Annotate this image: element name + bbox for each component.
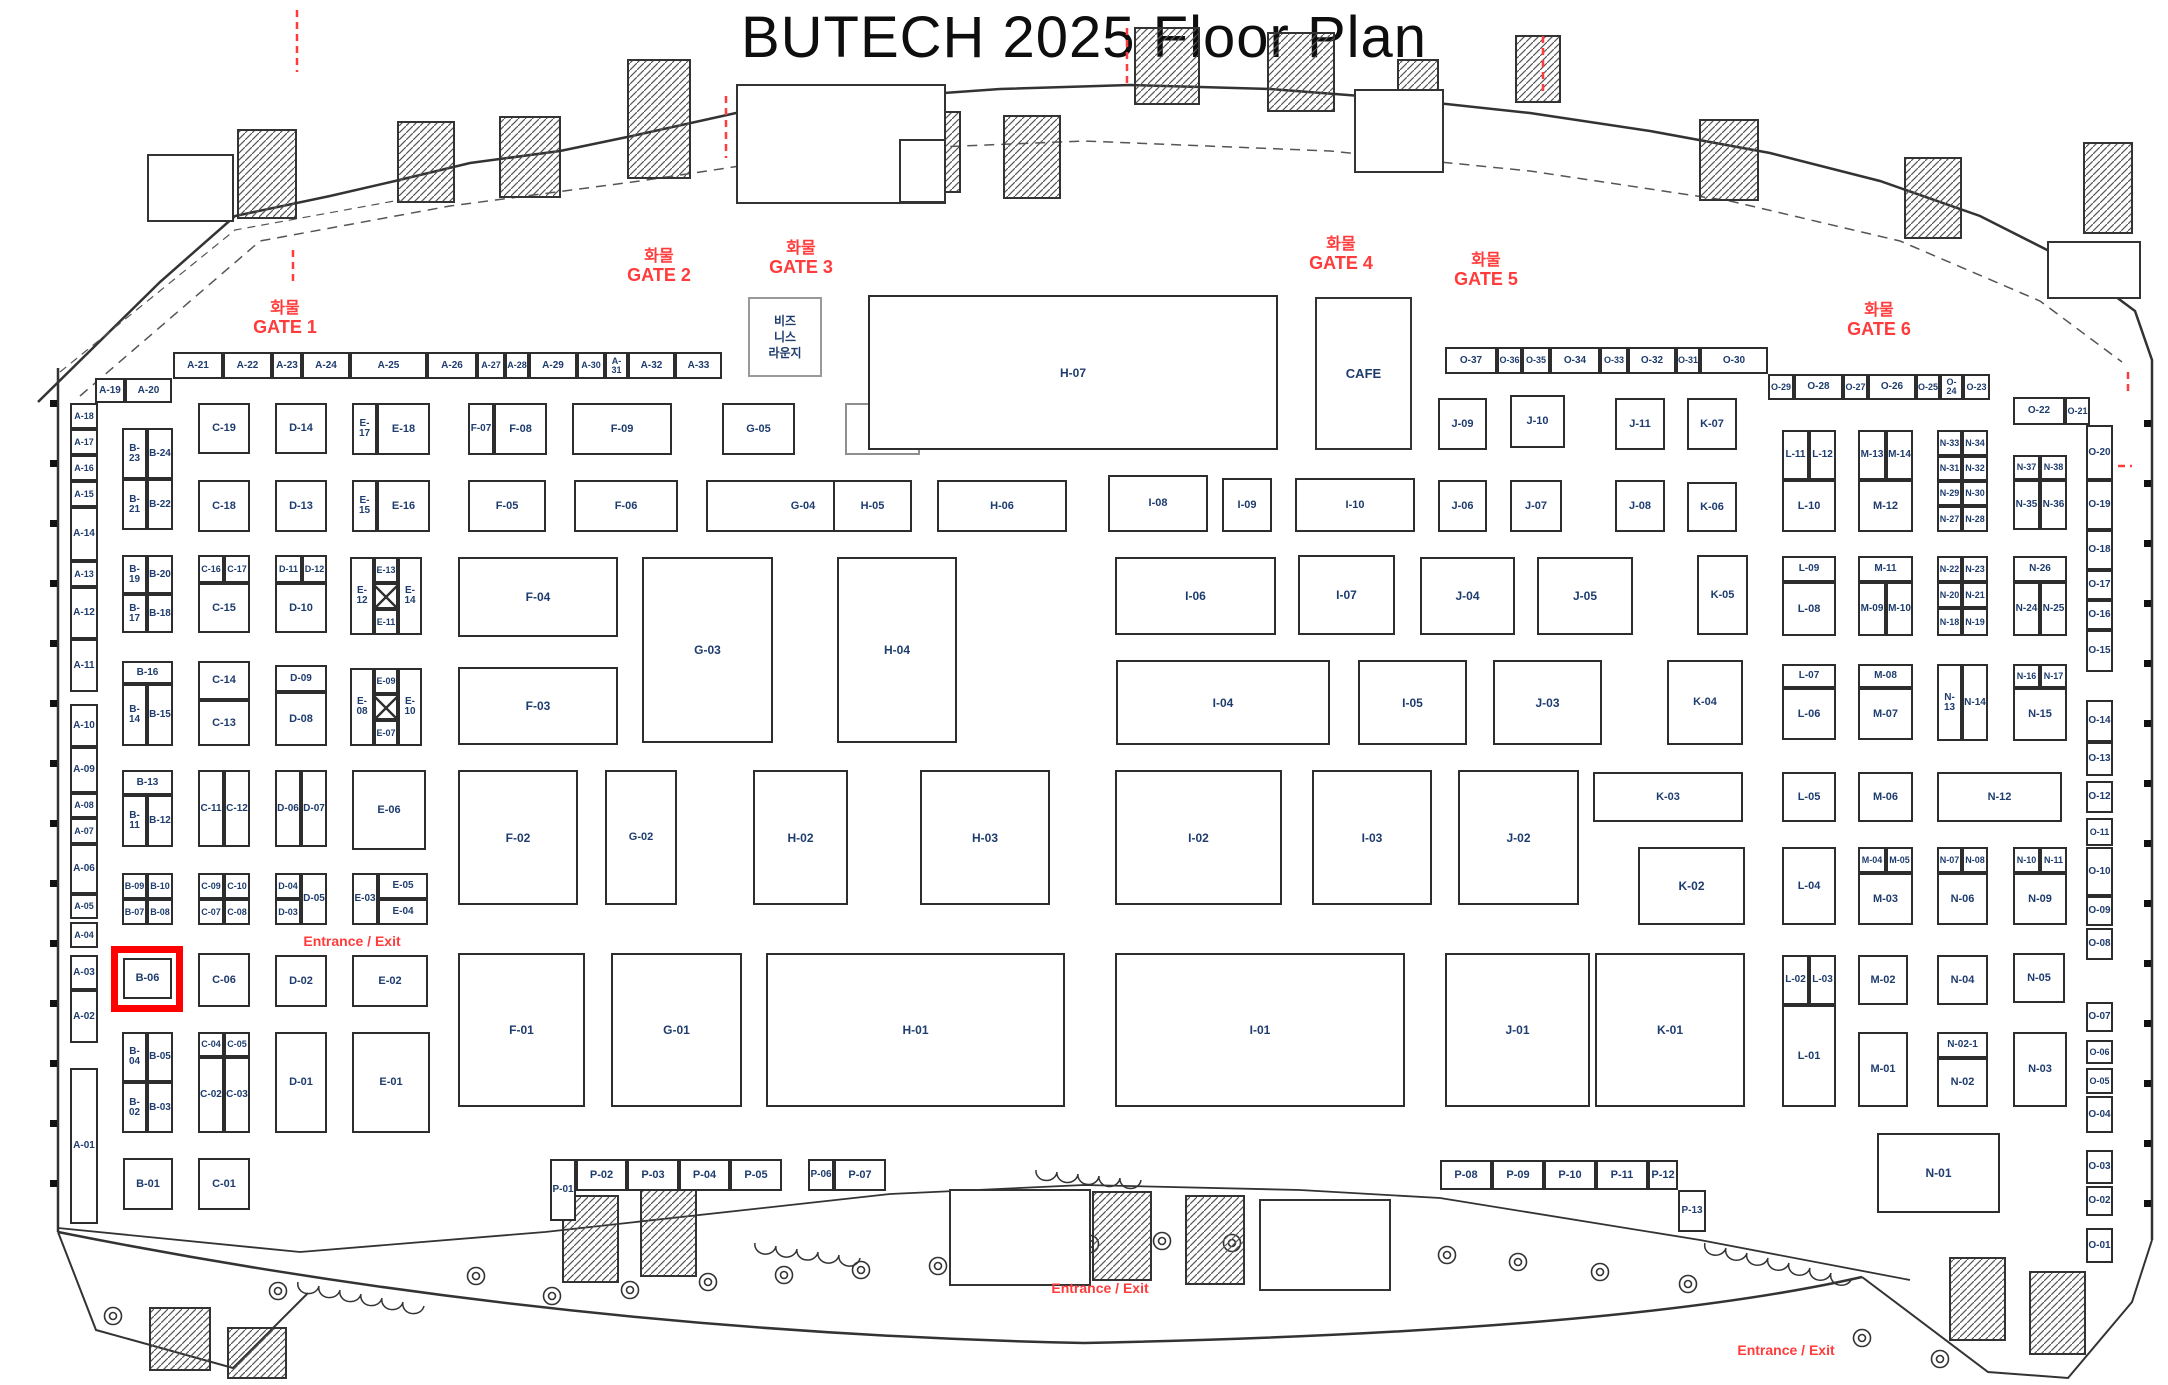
booth-H-03: H-03 [920, 770, 1050, 905]
booth-A-09: A-09 [70, 747, 98, 793]
booth-P-02: P-02 [576, 1159, 627, 1191]
booth-C-01: C-01 [198, 1158, 250, 1210]
booth-A-33: A-33 [675, 352, 722, 379]
cargo-gate-label-1: 화물GATE 1 [215, 300, 355, 337]
booth-B-14: B-14 [122, 684, 147, 746]
booth-E-18: E-18 [377, 403, 430, 455]
blocked-cell-icon [374, 583, 398, 609]
booth-A-03: A-03 [70, 955, 98, 990]
booth-O-10: O-10 [2086, 847, 2113, 896]
booth-D-11: D-11 [275, 555, 302, 583]
booth-N-18: N-18 [1937, 608, 1962, 636]
booth-L-01: L-01 [1782, 1005, 1836, 1107]
booth-A-08: A-08 [70, 793, 98, 818]
booth-B-22: B-22 [147, 479, 173, 530]
booth-I-08: I-08 [1108, 475, 1208, 532]
entrance-exit-label-1: Entrance / Exit [272, 933, 432, 949]
booth-A-13: A-13 [70, 561, 98, 587]
booth-H-01: H-01 [766, 953, 1065, 1107]
booth-O-33: O-33 [1600, 347, 1628, 374]
booth-J-05: J-05 [1537, 557, 1633, 635]
booth-B-11: B-11 [122, 795, 147, 847]
booth-B-07: B-07 [122, 899, 147, 925]
booth-O-04: O-04 [2086, 1096, 2113, 1133]
booth-I-04: I-04 [1116, 660, 1330, 745]
booth-N-35: N-35 [2013, 480, 2040, 530]
booth-M-08: M-08 [1858, 664, 1913, 688]
booth-K-02: K-02 [1638, 847, 1745, 925]
booth-M-09: M-09 [1858, 582, 1886, 636]
booth-P-12: P-12 [1648, 1160, 1678, 1190]
booth-A-24: A-24 [302, 352, 350, 379]
booth-B-23: B-23 [122, 428, 147, 479]
booth-G-01: G-01 [611, 953, 742, 1107]
booth-F-02: F-02 [458, 770, 578, 905]
booth-O-02: O-02 [2086, 1186, 2113, 1216]
booth-D-06: D-06 [275, 770, 301, 847]
booth-C-16: C-16 [198, 555, 224, 583]
booth-N-25: N-25 [2040, 582, 2067, 636]
booth-C-17: C-17 [224, 555, 250, 583]
booth-E-06: E-06 [352, 770, 426, 850]
booth-K-03: K-03 [1593, 772, 1743, 822]
booth-A-25: A-25 [350, 352, 427, 379]
booth-N-09: N-09 [2013, 873, 2067, 925]
booth-N-05: N-05 [2013, 953, 2065, 1003]
booth-P-03: P-03 [627, 1159, 679, 1191]
booth-J-11: J-11 [1615, 398, 1665, 450]
booth-C-18: C-18 [198, 480, 250, 532]
booth-O-35: O-35 [1522, 347, 1550, 374]
booth-C-06: C-06 [198, 953, 250, 1007]
booth-B-05: B-05 [147, 1032, 173, 1082]
booth-P-05: P-05 [730, 1159, 782, 1191]
booth-B-08: B-08 [147, 899, 173, 925]
booth-L-06: L-06 [1782, 688, 1836, 740]
booth-A-30: A-30 [577, 352, 605, 379]
booth-L-11: L-11 [1782, 430, 1809, 480]
booth-D-01: D-01 [275, 1032, 327, 1133]
booth-D-02: D-02 [275, 955, 327, 1007]
booth-L-02: L-02 [1782, 955, 1809, 1005]
booth-O-15: O-15 [2086, 630, 2113, 672]
booth-P-10: P-10 [1544, 1160, 1596, 1190]
booth-O-28: O-28 [1794, 374, 1843, 400]
cargo-gate-label-3: 화물GATE 3 [731, 240, 871, 277]
booth-L-04: L-04 [1782, 847, 1836, 925]
booth-E-02: E-02 [352, 955, 428, 1007]
booth-E-14: E-14 [398, 557, 422, 635]
booth-P-11: P-11 [1596, 1160, 1648, 1190]
booth-E-10: E-10 [398, 668, 422, 746]
booth-O-13: O-13 [2086, 742, 2113, 776]
booth-N-28: N-28 [1962, 506, 1988, 532]
booth-B-09: B-09 [122, 873, 147, 899]
inner-dashed-arc-left [60, 200, 400, 372]
booth-E-16: E-16 [377, 480, 430, 532]
booth-B-18: B-18 [147, 594, 173, 633]
booth-A-31: A-31 [605, 352, 628, 379]
booth-N-10: N-10 [2013, 847, 2040, 873]
booth-O-17: O-17 [2086, 570, 2113, 600]
booth-D-05: D-05 [301, 873, 327, 925]
booth-K-05: K-05 [1697, 555, 1748, 635]
booth-B-19: B-19 [122, 555, 147, 594]
booth-A-04: A-04 [70, 922, 98, 948]
booth-O-09: O-09 [2086, 896, 2113, 926]
booth-A-20: A-20 [125, 378, 172, 403]
booth-B-20: B-20 [147, 555, 173, 594]
booth-O-25: O-25 [1916, 374, 1940, 400]
booth-O-08: O-08 [2086, 928, 2113, 960]
booth-O-11: O-11 [2086, 818, 2113, 846]
booth-M-12: M-12 [1858, 480, 1913, 532]
booth-M-02: M-02 [1858, 955, 1908, 1005]
booth-P-01: P-01 [550, 1159, 576, 1221]
booth-E-08: E-08 [350, 668, 374, 746]
booth-I-02: I-02 [1115, 770, 1282, 905]
booth-N-11: N-11 [2040, 847, 2067, 873]
booth-J-09: J-09 [1438, 398, 1487, 450]
booth-L-10: L-10 [1782, 480, 1836, 532]
booth-D-08: D-08 [275, 692, 327, 746]
booth-I-06: I-06 [1115, 557, 1276, 635]
booth-K-06: K-06 [1687, 482, 1737, 532]
booth-N-16: N-16 [2013, 664, 2040, 688]
booth-F-09: F-09 [572, 403, 672, 455]
booth-O-20: O-20 [2086, 425, 2113, 480]
booth-A-17: A-17 [70, 429, 98, 455]
booth-D-14: D-14 [275, 403, 327, 454]
booth-B-21: B-21 [122, 479, 147, 530]
booth-O-36: O-36 [1497, 347, 1522, 374]
booth-B-03: B-03 [147, 1082, 173, 1133]
booth-L-03: L-03 [1809, 955, 1836, 1005]
booth-O-29: O-29 [1768, 374, 1794, 400]
booth-A-02: A-02 [70, 990, 98, 1043]
booth-D-13: D-13 [275, 480, 327, 532]
booth-O-14: O-14 [2086, 700, 2113, 742]
booth-N-04: N-04 [1937, 955, 1988, 1005]
booth-N-30: N-30 [1962, 481, 1988, 506]
booth-M-10: M-10 [1886, 582, 1913, 636]
booth-O-27: O-27 [1843, 374, 1868, 400]
booth-E-05: E-05 [378, 873, 428, 899]
booth-I-07: I-07 [1298, 555, 1395, 635]
booth-F-08: F-08 [494, 403, 547, 455]
booth-O-24: O-24 [1940, 374, 1963, 400]
booth-B-12: B-12 [147, 795, 173, 847]
booth-N-29: N-29 [1937, 481, 1962, 506]
booth-M-03: M-03 [1858, 873, 1913, 925]
booth-A-10: A-10 [70, 704, 98, 747]
booth-B-10: B-10 [147, 873, 173, 899]
booth-B-01: B-01 [123, 1158, 173, 1210]
booth-O-32: O-32 [1628, 347, 1676, 374]
booth-F-03: F-03 [458, 667, 618, 745]
booth-K-07: K-07 [1687, 398, 1737, 450]
room-business-lounge: 비즈니스라운지 [748, 297, 822, 377]
booth-M-13: M-13 [1858, 430, 1886, 480]
booth-L-12: L-12 [1809, 430, 1836, 480]
booth-F-04: F-04 [458, 557, 618, 637]
booth-C-12: C-12 [224, 770, 250, 847]
booth-O-16: O-16 [2086, 600, 2113, 630]
booth-L-09: L-09 [1782, 556, 1836, 582]
booth-B-04: B-04 [122, 1032, 147, 1082]
booth-N-15: N-15 [2013, 688, 2067, 741]
booth-N-14: N-14 [1962, 664, 1988, 741]
booth-N-27: N-27 [1937, 506, 1962, 532]
booth-A-19: A-19 [95, 378, 125, 403]
entrance-exit-label-2: Entrance / Exit [1020, 1280, 1180, 1296]
booth-P-08: P-08 [1440, 1160, 1492, 1190]
booth-N-36: N-36 [2040, 480, 2067, 530]
booth-G-03: G-03 [642, 557, 773, 743]
booth-M-07: M-07 [1858, 688, 1913, 740]
booth-I-05: I-05 [1358, 660, 1467, 745]
booth-O-31: O-31 [1676, 347, 1700, 374]
booth-E-13: E-13 [374, 557, 398, 583]
booth-G-05: G-05 [722, 403, 795, 455]
booth-D-04: D-04 [275, 873, 301, 899]
booth-A-21: A-21 [173, 352, 223, 379]
booth-O-23: O-23 [1963, 374, 1990, 400]
booth-O-22: O-22 [2013, 397, 2065, 425]
booth-B-13: B-13 [122, 770, 173, 795]
booth-H-07: H-07 [868, 295, 1278, 450]
booth-E-11: E-11 [374, 609, 398, 635]
booth-F-01: F-01 [458, 953, 585, 1107]
booth-E-12: E-12 [350, 557, 374, 635]
booth-A-28: A-28 [505, 352, 529, 379]
booth-J-08: J-08 [1615, 480, 1665, 532]
cargo-gate-label-5: 화물GATE 5 [1416, 252, 1556, 289]
booth-H-05: H-05 [833, 480, 912, 532]
booth-A-22: A-22 [223, 352, 272, 379]
booth-A-05: A-05 [70, 894, 98, 919]
booth-A-01: A-01 [70, 1068, 98, 1224]
booth-N-33: N-33 [1937, 430, 1962, 456]
booth-D-10: D-10 [275, 583, 327, 633]
booth-O-34: O-34 [1550, 347, 1600, 374]
booth-L-07: L-07 [1782, 664, 1836, 688]
booth-O-37: O-37 [1445, 347, 1497, 374]
floor-plan-page: BUTECH 2025 Floor Plan [0, 0, 2168, 1385]
blocked-cell-icon [374, 694, 398, 720]
booth-O-21: O-21 [2065, 397, 2090, 425]
booth-N-19: N-19 [1962, 608, 1988, 636]
booth-A-26: A-26 [427, 352, 477, 379]
booth-D-09: D-09 [275, 665, 327, 692]
booth-J-01: J-01 [1445, 953, 1590, 1107]
booth-N-03: N-03 [2013, 1032, 2067, 1107]
booth-J-04: J-04 [1420, 557, 1515, 635]
booth-J-10: J-10 [1510, 395, 1565, 448]
booth-N-17: N-17 [2040, 664, 2067, 688]
booth-N-20: N-20 [1937, 582, 1962, 608]
booth-P-09: P-09 [1492, 1160, 1544, 1190]
booth-J-02: J-02 [1458, 770, 1579, 905]
booth-J-03: J-03 [1493, 660, 1602, 745]
booth-I-09: I-09 [1222, 478, 1272, 532]
booth-C-02: C-02 [198, 1057, 224, 1133]
booth-O-12: O-12 [2086, 781, 2113, 813]
booth-D-03: D-03 [275, 899, 301, 925]
booth-K-01: K-01 [1595, 953, 1745, 1107]
booth-A-27: A-27 [477, 352, 505, 379]
entrance-exit-label-3: Entrance / Exit [1706, 1342, 1866, 1358]
booth-C-03: C-03 [224, 1057, 250, 1133]
booth-C-07: C-07 [198, 899, 224, 925]
booth-C-09: C-09 [198, 873, 224, 899]
booth-N-06: N-06 [1937, 873, 1988, 925]
booth-K-04: K-04 [1667, 660, 1743, 745]
booth-C-11: C-11 [198, 770, 224, 847]
booth-N-37: N-37 [2013, 455, 2040, 480]
booth-M-14: M-14 [1886, 430, 1913, 480]
booth-A-07: A-07 [70, 818, 98, 844]
booth-N-32: N-32 [1962, 456, 1988, 481]
booth-E-03: E-03 [352, 873, 378, 925]
booth-H-02: H-02 [753, 770, 848, 905]
booth-B-16: B-16 [122, 661, 173, 684]
booth-D-12: D-12 [302, 555, 327, 583]
booth-P-04: P-04 [679, 1159, 730, 1191]
booth-C-10: C-10 [224, 873, 250, 899]
booth-A-23: A-23 [272, 352, 302, 379]
booth-O-18: O-18 [2086, 530, 2113, 570]
booth-M-05: M-05 [1886, 847, 1913, 873]
booth-H-04: H-04 [837, 557, 957, 743]
booth-O-26: O-26 [1868, 374, 1916, 400]
booth-A-15: A-15 [70, 481, 98, 507]
booth-B-24: B-24 [147, 428, 173, 479]
booth-C-14: C-14 [198, 661, 250, 700]
booth-N-07: N-07 [1937, 847, 1962, 873]
booth-J-07: J-07 [1510, 480, 1562, 532]
booth-E-01: E-01 [352, 1032, 430, 1133]
cargo-gate-label-2: 화물GATE 2 [589, 248, 729, 285]
cargo-gate-label-4: 화물GATE 4 [1271, 236, 1411, 273]
booth-O-19: O-19 [2086, 480, 2113, 530]
booth-N-23: N-23 [1962, 556, 1988, 582]
booth-A-16: A-16 [70, 455, 98, 481]
booth-F-07: F-07 [468, 403, 494, 455]
booth-L-08: L-08 [1782, 582, 1836, 636]
booth-C-05: C-05 [224, 1032, 250, 1057]
booth-F-05: F-05 [468, 480, 546, 532]
booth-O-06: O-06 [2086, 1040, 2113, 1064]
room-cafe: CAFE [1315, 297, 1412, 450]
booth-B-17: B-17 [122, 594, 147, 633]
booth-B-15: B-15 [147, 684, 173, 746]
booth-O-01: O-01 [2086, 1228, 2113, 1263]
booth-N-12: N-12 [1937, 772, 2062, 822]
cargo-gate-label-6: 화물GATE 6 [1809, 302, 1949, 339]
booth-N-22: N-22 [1937, 556, 1962, 582]
booth-E-04: E-04 [378, 899, 428, 925]
booth-N-34: N-34 [1962, 430, 1988, 456]
booth-N-31: N-31 [1937, 456, 1962, 481]
booth-A-32: A-32 [628, 352, 675, 379]
booth-G-02: G-02 [605, 770, 677, 905]
booth-A-29: A-29 [529, 352, 577, 379]
booth-D-07: D-07 [301, 770, 327, 847]
booth-C-19: C-19 [198, 403, 250, 454]
booth-I-01: I-01 [1115, 953, 1405, 1107]
booth-C-13: C-13 [198, 700, 250, 746]
booth-A-18: A-18 [70, 403, 98, 429]
booth-B-02: B-02 [122, 1082, 147, 1133]
booth-E-17: E-17 [352, 403, 377, 455]
booth-L-05: L-05 [1782, 772, 1836, 822]
booth-M-01: M-01 [1858, 1032, 1908, 1107]
booth-O-05: O-05 [2086, 1068, 2113, 1094]
booth-H-06: H-06 [937, 480, 1067, 532]
booth-O-03: O-03 [2086, 1150, 2113, 1184]
booth-P-13: P-13 [1678, 1190, 1706, 1232]
booth-N-24: N-24 [2013, 582, 2040, 636]
booth-P-07: P-07 [834, 1159, 886, 1191]
booth-F-06: F-06 [574, 480, 678, 532]
booth-O-07: O-07 [2086, 1002, 2113, 1032]
booth-P-06: P-06 [808, 1159, 834, 1191]
booth-N-02: N-02 [1937, 1058, 1988, 1107]
booth-N-02-1: N-02-1 [1937, 1032, 1988, 1058]
booth-A-06: A-06 [70, 844, 98, 894]
booth-A-12: A-12 [70, 587, 98, 639]
booth-M-04: M-04 [1858, 847, 1886, 873]
booth-E-15: E-15 [352, 480, 377, 532]
booth-E-09: E-09 [374, 668, 398, 694]
booth-E-07: E-07 [374, 720, 398, 746]
booth-C-15: C-15 [198, 583, 250, 633]
booth-I-03: I-03 [1312, 770, 1432, 905]
booth-I-10: I-10 [1295, 478, 1415, 532]
booth-C-04: C-04 [198, 1032, 224, 1057]
booth-N-38: N-38 [2040, 455, 2067, 480]
booth-N-08: N-08 [1962, 847, 1988, 873]
highlight-box-B-06 [111, 946, 183, 1012]
booth-A-11: A-11 [70, 639, 98, 692]
booth-J-06: J-06 [1438, 480, 1487, 532]
booth-A-14: A-14 [70, 507, 98, 561]
booth-N-26: N-26 [2013, 556, 2067, 582]
booth-M-11: M-11 [1858, 556, 1913, 582]
booth-N-13: N-13 [1937, 664, 1962, 741]
booth-M-06: M-06 [1858, 772, 1913, 822]
booth-C-08: C-08 [224, 899, 250, 925]
booth-N-21: N-21 [1962, 582, 1988, 608]
booth-N-01: N-01 [1877, 1133, 2000, 1213]
booth-O-30: O-30 [1700, 347, 1768, 374]
